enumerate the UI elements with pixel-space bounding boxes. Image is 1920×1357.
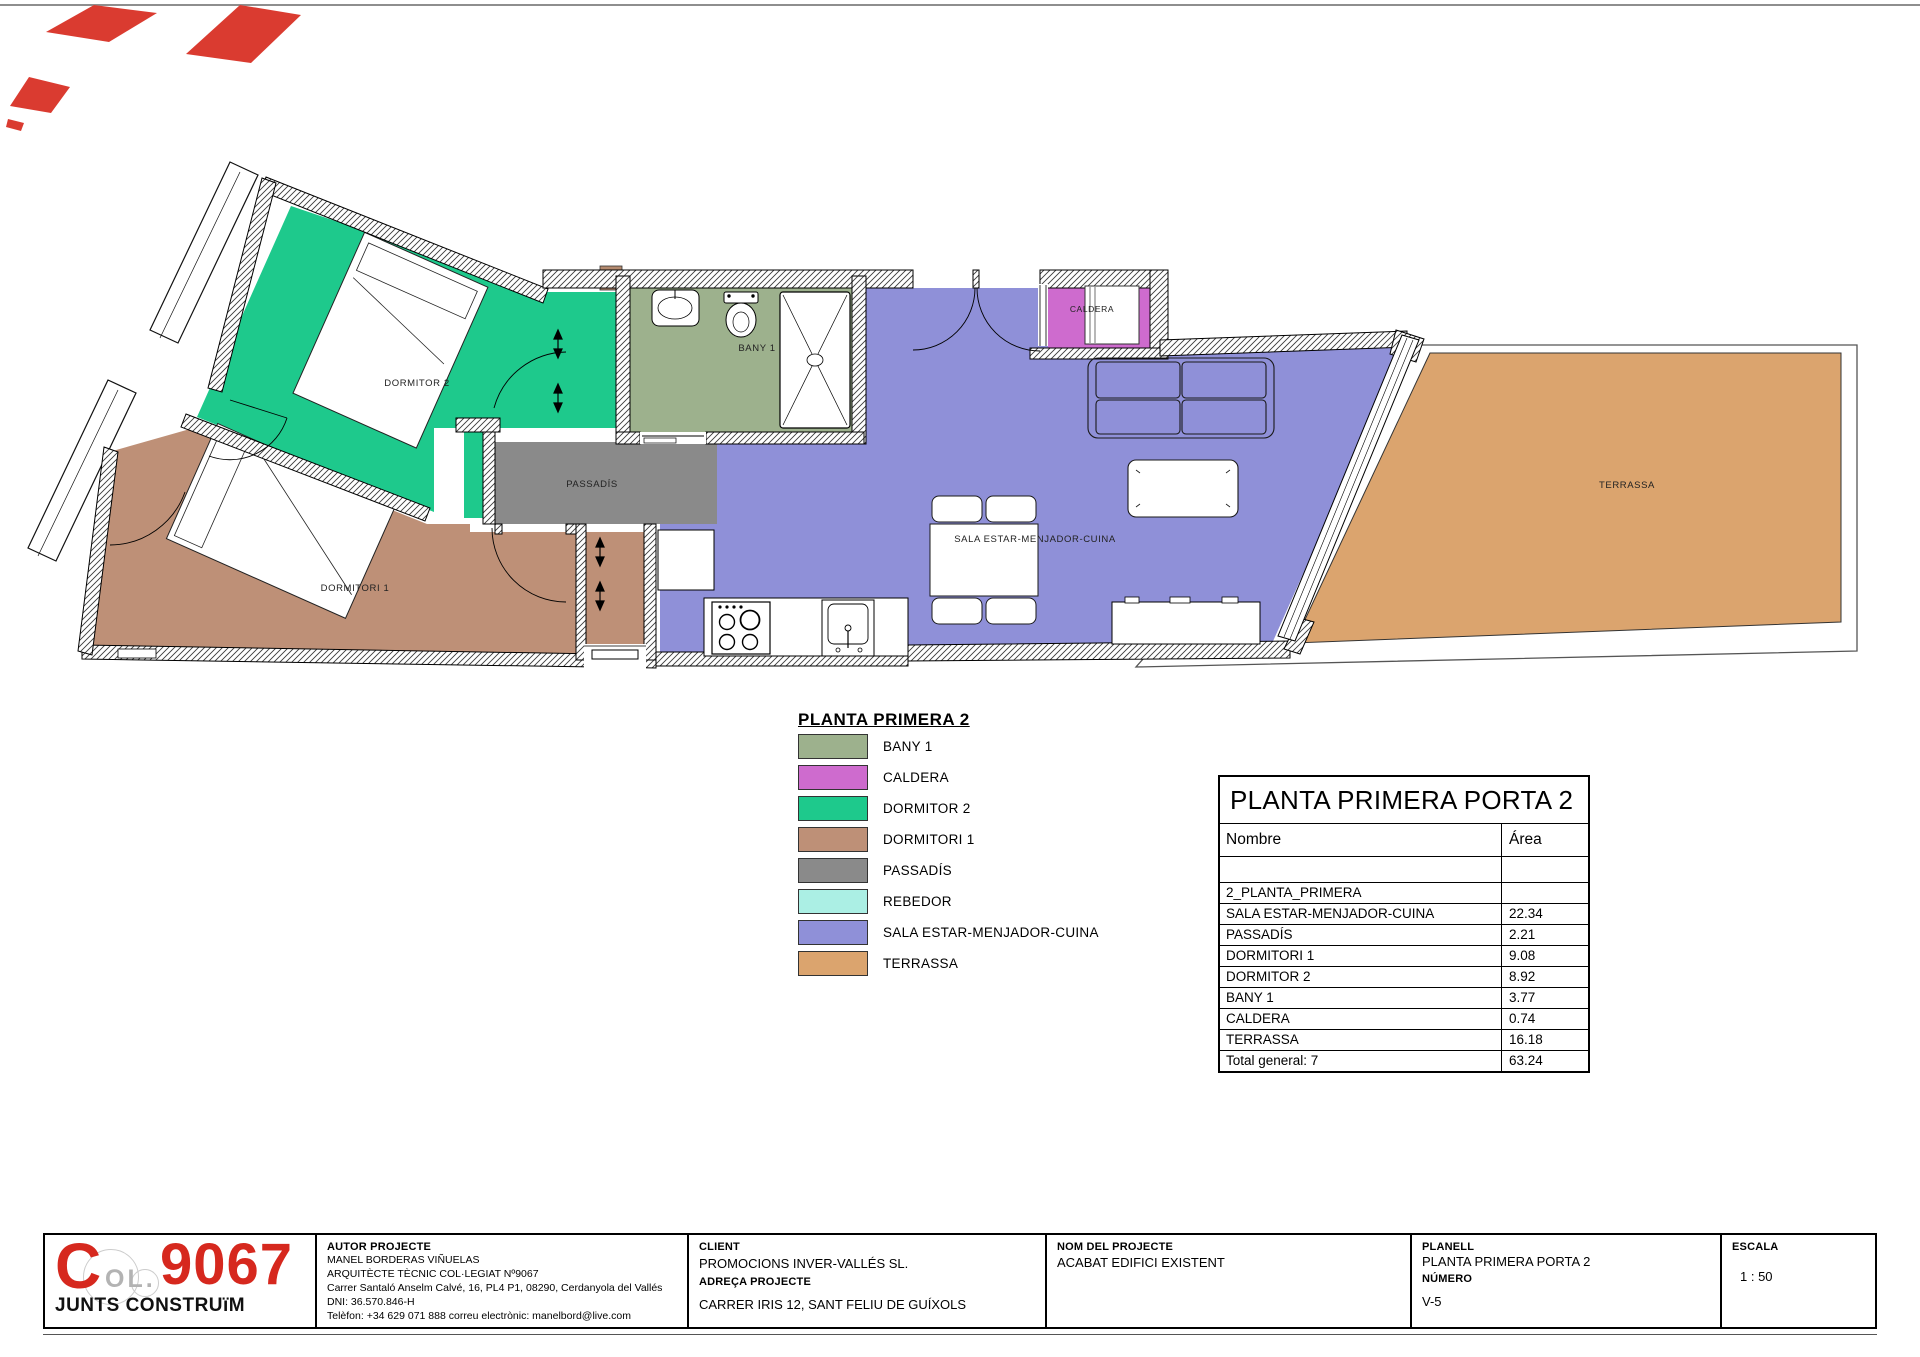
numero-value: V-5 <box>1422 1294 1710 1309</box>
legend-swatch-sala <box>798 920 868 945</box>
legend-label: DORMITORI 1 <box>868 832 975 847</box>
autor-name: MANEL BORDERAS VIÑUELAS <box>327 1253 677 1267</box>
kitchen-island <box>1112 597 1260 644</box>
client-name: PROMOCIONS INVER-VALLÉS SL. <box>699 1256 1035 1271</box>
wall-top-mid-post <box>973 270 979 288</box>
legend-swatch-passadis <box>798 858 868 883</box>
chair <box>932 496 982 522</box>
legend-swatch-dormitori1 <box>798 827 868 852</box>
shower <box>780 292 850 428</box>
wall-green-strip-right <box>483 432 495 524</box>
legend-swatch-dormitor2 <box>798 796 868 821</box>
wall-passadis-bottom-r <box>566 524 576 534</box>
nom-value: ACABAT EDIFICI EXISTENT <box>1057 1255 1400 1270</box>
red-scan-marks <box>6 5 301 131</box>
room-label-dormitori-1: DORMITORI 1 <box>321 583 390 594</box>
legend-label: DORMITOR 2 <box>868 801 971 816</box>
wall-bany-left <box>616 276 630 444</box>
planell-header: PLANELL <box>1422 1241 1710 1253</box>
legend-title: PLANTA PRIMERA 2 <box>798 710 1118 730</box>
table-row <box>1220 857 1588 883</box>
title-block: C OL. 9067 JUNTS CONSTRUïM AUTOR PROJECT… <box>43 1233 1877 1329</box>
legend-item: REBEDOR <box>798 886 1118 916</box>
table-row: PASSADÍS 2.21 <box>1220 925 1588 946</box>
area-table-header: Nombre Área <box>1220 824 1588 857</box>
logo-tagline: JUNTS CONSTRUïM <box>55 1295 245 1317</box>
bathroom-sink <box>652 290 699 326</box>
col-header-area: Área <box>1501 824 1588 856</box>
legend-label: TERRASSA <box>868 956 958 971</box>
nom-header: NOM DEL PROJECTE <box>1057 1241 1400 1253</box>
kitchen-counter <box>704 598 908 656</box>
titleblock-escala-cell: ESCALA 1 : 50 <box>1720 1235 1879 1327</box>
legend-swatch-rebedor <box>798 889 868 914</box>
floorplan-drawing: DORMITOR 2 DORMITORI 1 PASSADÍS BANY 1 C… <box>0 0 1920 700</box>
room-label-bany-1: BANY 1 <box>738 343 775 354</box>
logo-number: 9067 <box>160 1235 293 1298</box>
chair <box>986 496 1036 522</box>
legend-item: DORMITOR 2 <box>798 793 1118 823</box>
wall-passadis-top-right <box>706 432 864 444</box>
escala-header: ESCALA <box>1732 1241 1869 1253</box>
caldera-door <box>1038 284 1048 346</box>
titleblock-planell-cell: PLANELL PLANTA PRIMERA PORTA 2 NÚMERO V-… <box>1410 1235 1720 1327</box>
table-row: CALDERA 0.74 <box>1220 1009 1588 1030</box>
entrance-door <box>584 644 646 670</box>
legend-swatch-bany1 <box>798 734 868 759</box>
table-row-total: Total general: 7 63.24 <box>1220 1051 1588 1071</box>
legend-item: TERRASSA <box>798 948 1118 978</box>
legend-label: SALA ESTAR-MENJADOR-CUINA <box>868 925 1099 940</box>
legend: PLANTA PRIMERA 2 BANY 1 CALDERA DORMITOR… <box>798 710 1118 978</box>
escala-value: 1 : 50 <box>1732 1269 1869 1284</box>
legend-item: SALA ESTAR-MENJADOR-CUINA <box>798 917 1118 947</box>
area-table-title: PLANTA PRIMERA PORTA 2 <box>1220 777 1588 824</box>
table-row: DORMITORI 1 9.08 <box>1220 946 1588 967</box>
wall-top-right-seg <box>1040 270 1165 288</box>
autor-dni: DNI: 36.570.846-H <box>327 1295 677 1309</box>
legend-label: REBEDOR <box>868 894 952 909</box>
table-row: TERRASSA 16.18 <box>1220 1030 1588 1051</box>
titleblock-client-cell: CLIENT PROMOCIONS INVER-VALLÉS SL. ADREÇ… <box>687 1235 1045 1327</box>
room-label-terrassa: TERRASSA <box>1599 480 1655 491</box>
table-row: DORMITOR 2 8.92 <box>1220 967 1588 988</box>
title-block-lower-rule <box>43 1334 1877 1335</box>
area-table: PLANTA PRIMERA PORTA 2 Nombre Área 2_PLA… <box>1218 775 1590 1073</box>
titleblock-nom-cell: NOM DEL PROJECTE ACABAT EDIFICI EXISTENT <box>1045 1235 1410 1327</box>
adreca-value: CARRER IRIS 12, SANT FELIU DE GUÍXOLS <box>699 1297 1035 1312</box>
planell-value: PLANTA PRIMERA PORTA 2 <box>1422 1254 1710 1269</box>
wall-corridor-left <box>576 524 586 660</box>
stove-icon <box>712 602 770 654</box>
wall-notch <box>118 649 156 658</box>
titleblock-autor-cell: AUTOR PROJECTE MANEL BORDERAS VIÑUELAS A… <box>315 1235 687 1327</box>
autor-header: AUTOR PROJECTE <box>327 1241 677 1253</box>
autor-address: Carrer Santaló Anselm Calvé, 16, PL4 P1,… <box>327 1281 677 1295</box>
room-entry-corridor <box>586 532 644 660</box>
titleblock-logo-cell: C OL. 9067 JUNTS CONSTRUïM <box>45 1235 315 1327</box>
legend-swatch-caldera <box>798 765 868 790</box>
legend-swatch-terrassa <box>798 951 868 976</box>
legend-label: BANY 1 <box>868 739 933 754</box>
logo-letters-ol: OL. <box>105 1265 156 1294</box>
table-row: 2_PLANTA_PRIMERA <box>1220 883 1588 904</box>
table-row: BANY 1 3.77 <box>1220 988 1588 1009</box>
client-header: CLIENT <box>699 1241 1035 1253</box>
wall-passadis-bottom-l <box>495 524 502 534</box>
legend-label: PASSADÍS <box>868 863 952 878</box>
wall-passadis-top-left <box>616 432 640 444</box>
autor-title: ARQUITÈCTE TÈCNIC COL·LEGIAT Nº9067 <box>327 1267 677 1281</box>
room-label-dormitor-2: DORMITOR 2 <box>384 378 449 389</box>
room-label-passadis: PASSADÍS <box>566 479 618 490</box>
logo-letter-c: C <box>55 1235 101 1303</box>
chair <box>986 598 1036 624</box>
col-header-nombre: Nombre <box>1220 824 1501 856</box>
legend-item: BANY 1 <box>798 731 1118 761</box>
fridge-unit <box>658 530 714 590</box>
legend-item: DORMITORI 1 <box>798 824 1118 854</box>
wall-caldera-bottom <box>1030 348 1168 359</box>
coffee-table <box>1128 460 1238 517</box>
room-label-sala: SALA ESTAR-MENJADOR-CUINA <box>954 534 1116 545</box>
numero-header: NÚMERO <box>1422 1273 1710 1285</box>
wall-green-strip-top <box>456 418 500 432</box>
wall-corridor-right <box>644 524 656 660</box>
legend-label: CALDERA <box>868 770 949 785</box>
legend-item: CALDERA <box>798 762 1118 792</box>
wall-bany-right <box>852 276 866 444</box>
boiler-unit <box>1085 286 1139 344</box>
room-label-caldera: CALDERA <box>1070 304 1114 314</box>
legend-item: PASSADÍS <box>798 855 1118 885</box>
table-row: SALA ESTAR-MENJADOR-CUINA 22.34 <box>1220 904 1588 925</box>
adreca-header: ADREÇA PROJECTE <box>699 1276 1035 1288</box>
autor-contact: Telèfon: +34 629 071 888 correu electròn… <box>327 1309 677 1323</box>
chair <box>932 598 982 624</box>
kitchen-sink-icon <box>822 600 874 656</box>
toilet <box>724 292 758 337</box>
bany-door <box>640 432 706 444</box>
